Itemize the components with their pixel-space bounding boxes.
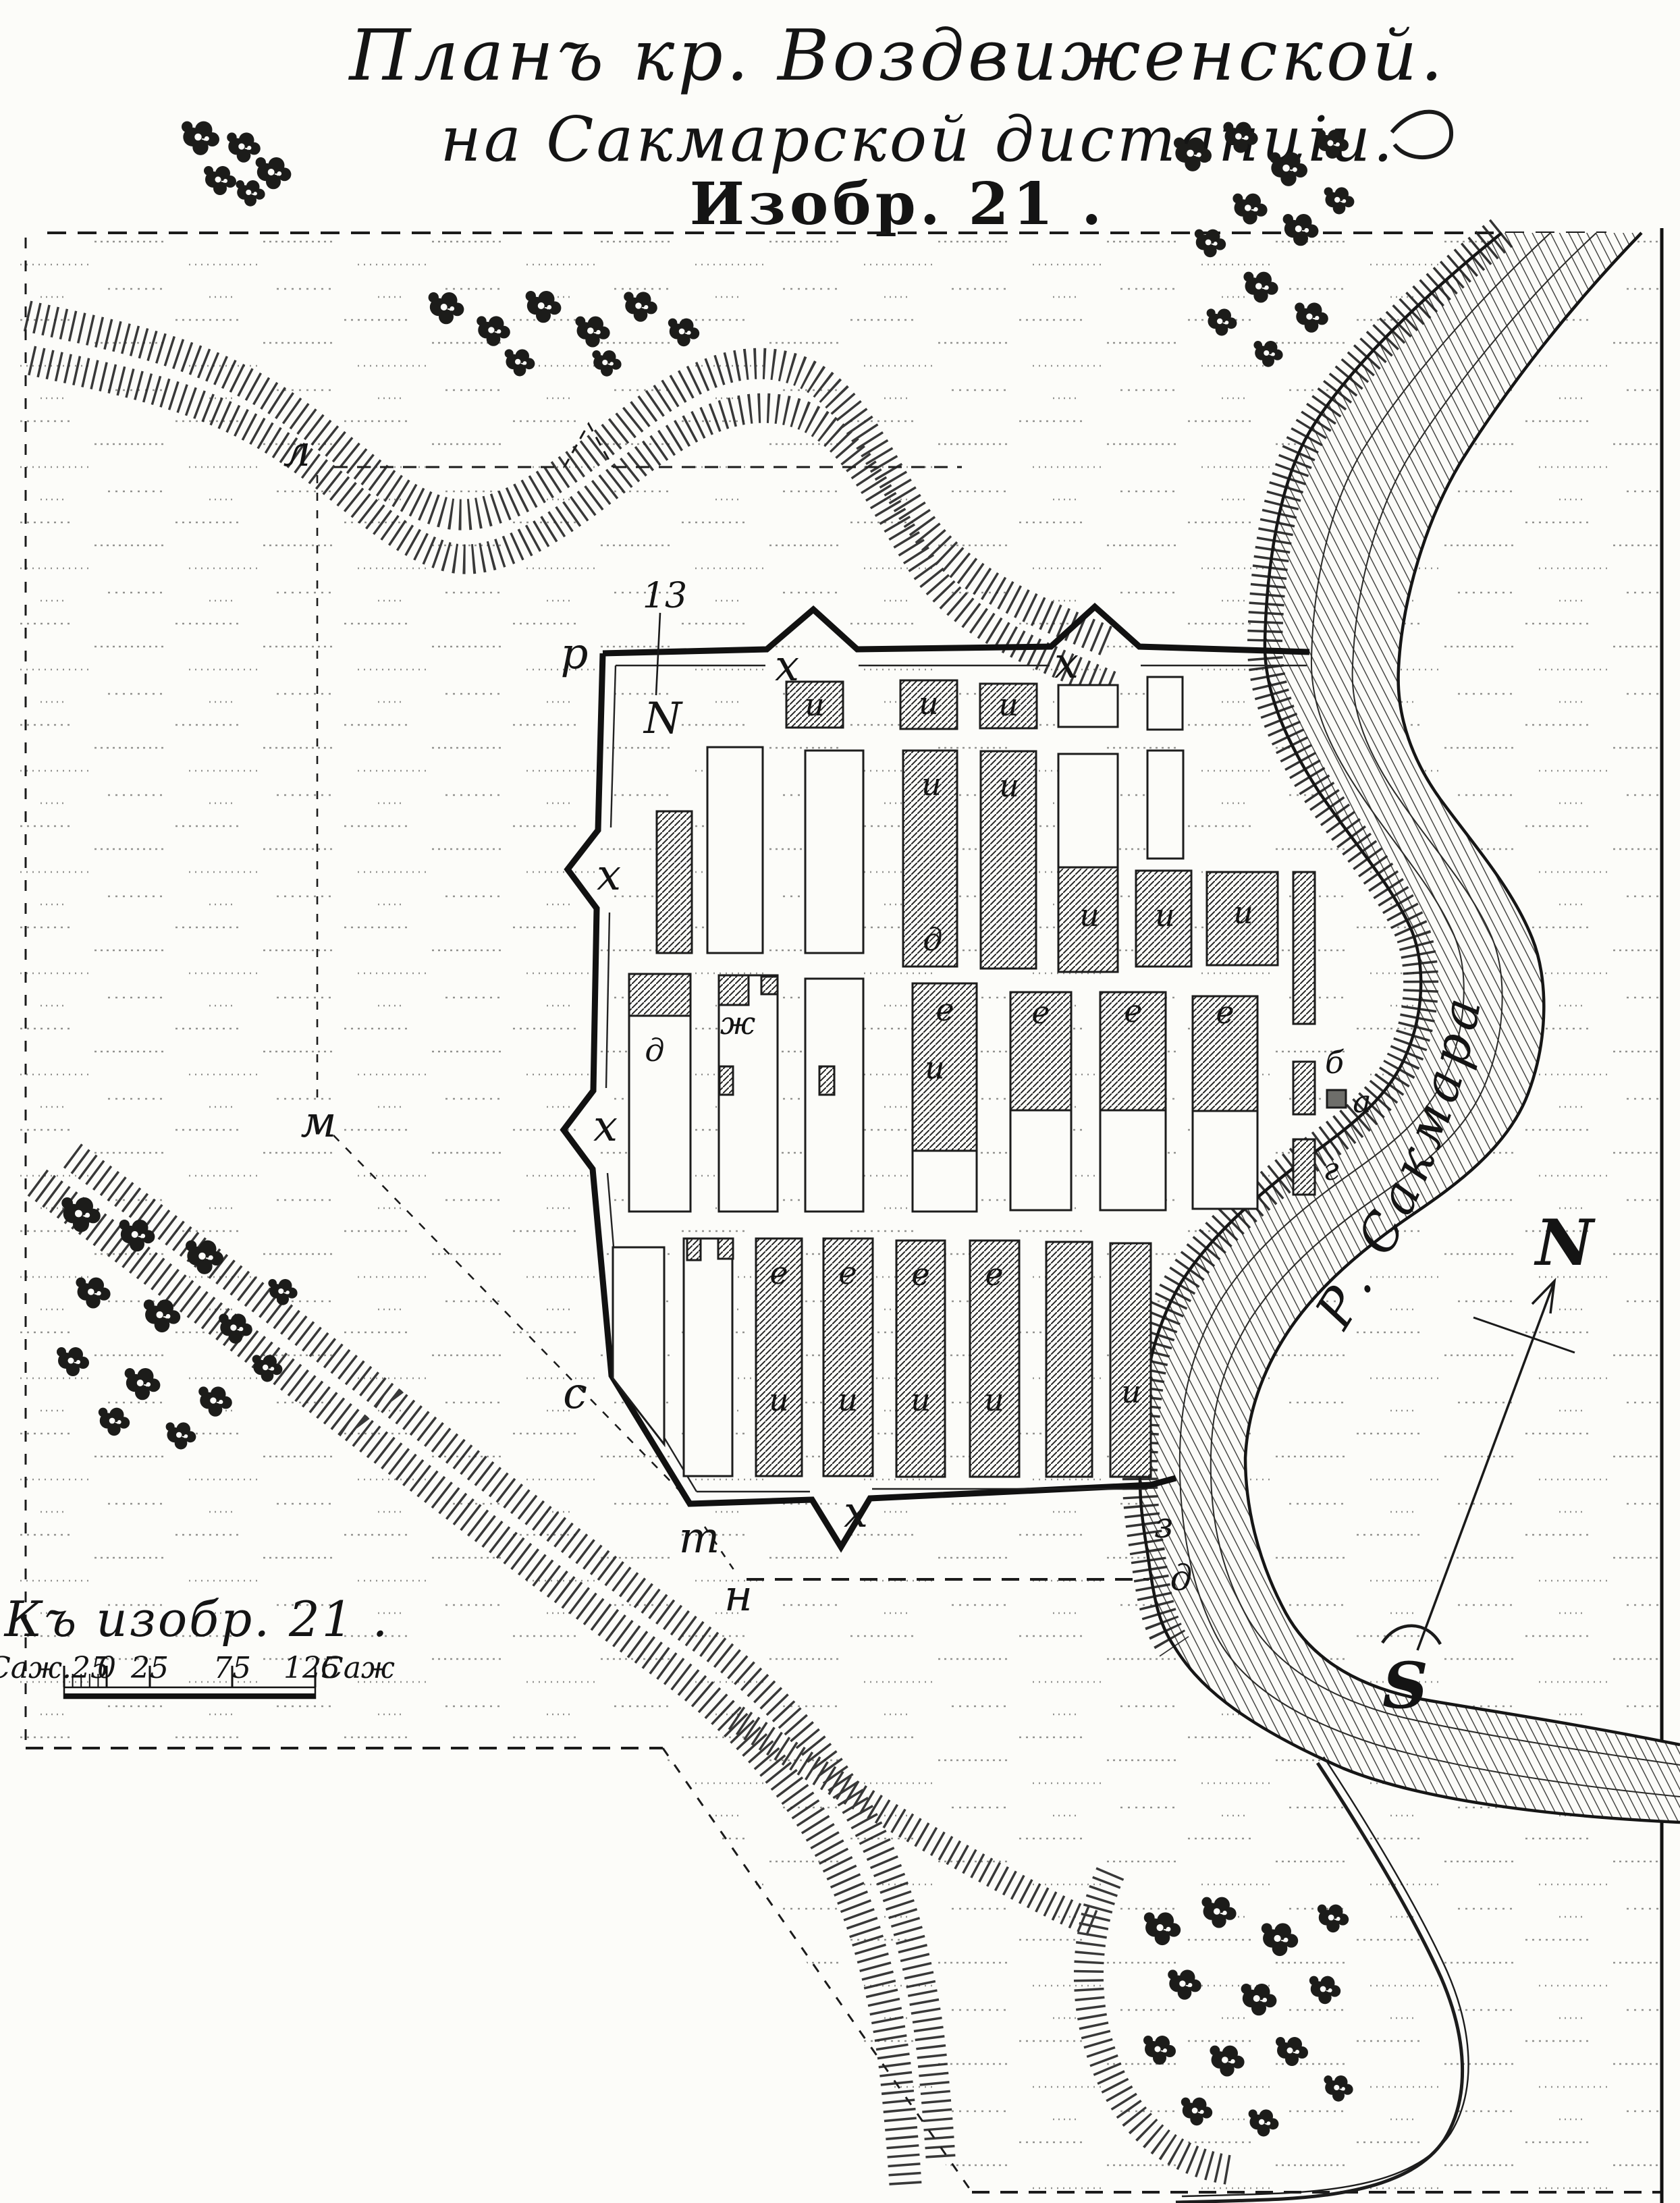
label-n: н xyxy=(724,1571,753,1621)
label-x-west2: х xyxy=(593,1101,618,1151)
block-label-i: и xyxy=(998,686,1019,723)
block-label-b: б xyxy=(1325,1044,1345,1081)
label-z: з xyxy=(1154,1506,1173,1546)
block-label-g: г xyxy=(1323,1151,1338,1187)
block-label-e: е xyxy=(911,1256,929,1293)
label-m: м xyxy=(300,1097,336,1147)
block-label-i: и xyxy=(805,686,825,723)
block-label-d: д xyxy=(923,921,942,958)
label-x-north2: х xyxy=(1054,638,1079,688)
compass-north-label: N xyxy=(1534,1206,1596,1280)
block-label-d: д xyxy=(645,1032,664,1068)
label-s: с xyxy=(563,1369,587,1419)
title-line-3: Изобр. 21 . xyxy=(690,170,1106,238)
block-label-i: и xyxy=(999,767,1019,804)
block-label-i: и xyxy=(921,766,942,803)
block-label-i: и xyxy=(1155,897,1175,933)
block-label-e: е xyxy=(1216,994,1234,1031)
ref-number-13: 13 xyxy=(643,576,687,616)
map-sheet: Планъ кр. Воздвиженской. на Сакмарской д… xyxy=(0,0,1680,2203)
block-label-i: и xyxy=(1121,1374,1141,1410)
label-x-west1: х xyxy=(597,850,621,900)
block-label-e: е xyxy=(985,1256,1003,1293)
fortress-plan-map: Планъ кр. Воздвиженской. на Сакмарской д… xyxy=(0,0,1680,2203)
block-label-e: е xyxy=(936,991,954,1028)
label-r: р xyxy=(561,629,589,679)
scale-caption: Къ изобр. 21 . xyxy=(3,1591,390,1648)
block-label-a: а xyxy=(1353,1083,1371,1120)
block-label-i: и xyxy=(1079,897,1100,933)
label-d-bank: д xyxy=(1170,1558,1193,1599)
label-l: л xyxy=(283,427,311,477)
block-label-e: е xyxy=(769,1255,788,1291)
ref-letter-n: N xyxy=(643,694,683,744)
block-label-e: е xyxy=(1031,994,1050,1031)
label-x-north1: х xyxy=(775,641,799,691)
block-label-i: и xyxy=(984,1382,1004,1418)
block-label-i: и xyxy=(925,1050,945,1086)
scale-left-label: Саж.25 xyxy=(0,1651,109,1685)
compass-south-label: S xyxy=(1382,1649,1428,1723)
scale-unit: Саж xyxy=(321,1651,395,1685)
label-x-south: х xyxy=(844,1488,868,1538)
block-label-i: и xyxy=(838,1382,858,1418)
block-label-i: и xyxy=(911,1382,931,1418)
block-label-i: и xyxy=(1233,894,1253,931)
block-label-e: е xyxy=(838,1255,857,1291)
block-label-i: и xyxy=(769,1382,789,1418)
block-label-i: и xyxy=(919,685,939,722)
label-t: т xyxy=(679,1513,720,1563)
block-label-e: е xyxy=(1124,993,1142,1029)
title-line-1: Планъ кр. Воздвиженской. xyxy=(348,14,1446,97)
block-label-zh: ж xyxy=(720,1005,755,1041)
